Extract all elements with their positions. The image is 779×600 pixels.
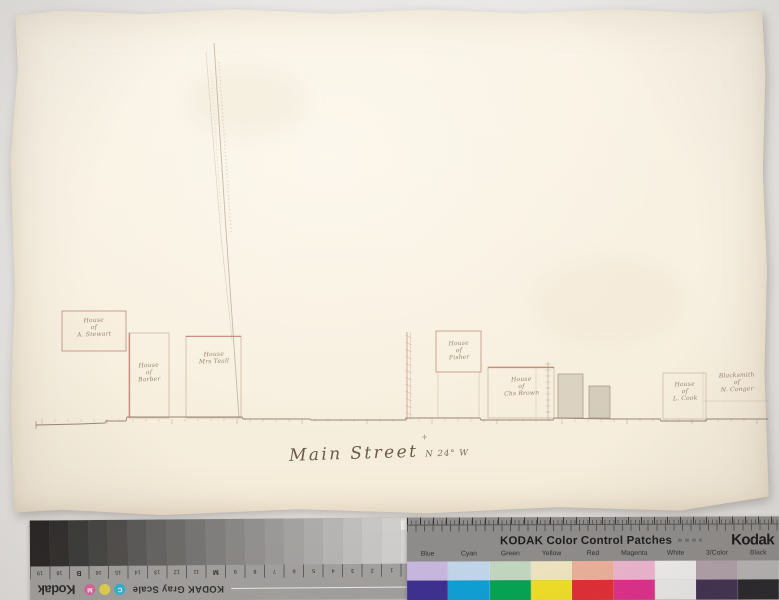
gray-step xyxy=(147,519,167,565)
kodak-logo: Kodak xyxy=(731,531,774,548)
color-dot xyxy=(99,584,110,595)
map-sheet xyxy=(8,6,770,516)
gray-tick-label: 16 xyxy=(89,569,109,575)
gray-tick-label: B xyxy=(69,569,89,576)
color-tint-row xyxy=(407,560,779,580)
gray-step xyxy=(49,520,69,566)
gray-step xyxy=(245,519,265,565)
scanned-photo: House of A. Stewart House of Barber Hous… xyxy=(0,0,779,600)
gray-step xyxy=(323,518,343,564)
gray-tick-label: M xyxy=(206,568,226,575)
color-column-label: Yellow xyxy=(531,550,572,561)
color-patch-tint xyxy=(738,560,779,579)
gray-step xyxy=(108,520,128,566)
gray-step xyxy=(186,519,206,565)
street-name: Main Street xyxy=(289,442,419,466)
paper-stain xyxy=(528,255,688,346)
gray-step xyxy=(362,518,382,564)
gray-step xyxy=(303,518,323,564)
kodak-gray-scale: KODAK Gray Scale CM Kodak A123456789M111… xyxy=(30,517,422,600)
color-column-label: Black xyxy=(738,549,779,560)
color-patch-solid xyxy=(407,581,448,600)
gray-tick-label: 11 xyxy=(187,569,207,575)
gray-tick-label: 18 xyxy=(50,570,70,576)
gray-step xyxy=(264,519,284,565)
color-patch-tint xyxy=(531,561,572,580)
house-barber-label: House of Barber xyxy=(130,361,169,384)
color-patch-tint xyxy=(448,561,489,580)
gray-scale-cmy-dots: CM xyxy=(84,584,125,595)
gray-tick-label: 12 xyxy=(167,569,187,575)
gray-tick-label: 19 xyxy=(30,570,50,576)
paper-surface xyxy=(7,4,771,517)
kodak-color-control-patches: KODAK Color Control Patches Kodak BlueCy… xyxy=(407,516,779,600)
color-patch-solid xyxy=(572,580,613,600)
label-line: Fisher xyxy=(438,354,480,363)
gray-step xyxy=(69,520,89,566)
gray-tick-label: 1 xyxy=(382,567,402,573)
color-bar-fine-print xyxy=(678,539,702,542)
color-patch-solid xyxy=(490,580,531,600)
label-line: L. Cook xyxy=(665,395,705,404)
color-column-label: 3/Color xyxy=(696,549,737,560)
color-dot: M xyxy=(84,585,95,596)
street-bearing: N 24° W xyxy=(425,448,469,459)
gray-step xyxy=(167,519,187,565)
gray-tick-label: 9 xyxy=(226,568,246,574)
gray-tick-label: 3 xyxy=(343,567,363,573)
color-bar-title-row: KODAK Color Control Patches Kodak xyxy=(407,530,779,550)
paper-stain xyxy=(187,66,307,137)
house-fisher-label: House of Fisher xyxy=(438,339,481,362)
color-solid-row xyxy=(407,579,779,600)
blacksmith-label: Blacksmith of N. Conger xyxy=(701,371,774,395)
gray-tick-label: 14 xyxy=(128,569,148,575)
gray-tick-label: 7 xyxy=(265,568,285,574)
gray-step xyxy=(225,519,245,565)
color-patch-tint xyxy=(614,561,655,580)
gray-scale-steps xyxy=(30,517,421,566)
gray-tick-label: 5 xyxy=(304,568,324,574)
color-patch-solid xyxy=(655,580,696,600)
color-patch-solid xyxy=(614,580,655,600)
house-stewart-label: House of A. Stewart xyxy=(64,316,125,340)
color-dot: C xyxy=(114,584,125,595)
color-patch-solid xyxy=(738,579,779,599)
gray-scale-title-row: KODAK Gray Scale CM Kodak xyxy=(30,576,421,600)
gray-step xyxy=(88,520,108,566)
house-teall-label: House Mrs Teall xyxy=(188,350,240,366)
color-patch-tint xyxy=(655,561,696,580)
color-column-label: Magenta xyxy=(614,550,655,561)
gray-scale-rule xyxy=(231,587,413,589)
gray-tick-label: 2 xyxy=(362,567,382,573)
label-line: Barber xyxy=(130,376,168,385)
color-patch-tint xyxy=(407,562,448,581)
gray-tick-label: 15 xyxy=(108,569,128,575)
color-patch-tint xyxy=(572,561,613,580)
gray-step xyxy=(342,518,362,564)
color-column-label: White xyxy=(655,550,696,561)
color-patch-solid xyxy=(696,579,737,599)
gray-step xyxy=(284,518,304,564)
gray-scale-content: KODAK Gray Scale CM Kodak A123456789M111… xyxy=(30,517,422,600)
gray-step xyxy=(382,518,402,564)
color-bar-title: KODAK Color Control Patches xyxy=(500,534,672,547)
color-patch-tint xyxy=(490,561,531,580)
gray-tick-label: 6 xyxy=(284,568,304,574)
color-column-label: Blue xyxy=(407,551,448,562)
gray-scale-title: KODAK Gray Scale xyxy=(132,584,223,596)
gray-step xyxy=(206,519,226,565)
house-brown-label: House of Chs Brown xyxy=(491,375,553,399)
color-patch-tint xyxy=(696,560,737,579)
gray-step xyxy=(127,520,147,566)
gray-tick-label: 8 xyxy=(245,568,265,574)
color-column-label: Red xyxy=(572,550,613,561)
house-cook-label: House of L. Cook xyxy=(665,380,706,403)
gray-step xyxy=(30,520,50,566)
color-patch-solid xyxy=(448,580,489,600)
gray-tick-label: 4 xyxy=(323,568,343,574)
kodak-logo: Kodak xyxy=(38,583,75,598)
color-column-label: Cyan xyxy=(448,550,489,561)
color-patch-solid xyxy=(531,580,572,600)
color-column-label: Green xyxy=(490,550,531,561)
gray-tick-label: 13 xyxy=(147,569,167,575)
